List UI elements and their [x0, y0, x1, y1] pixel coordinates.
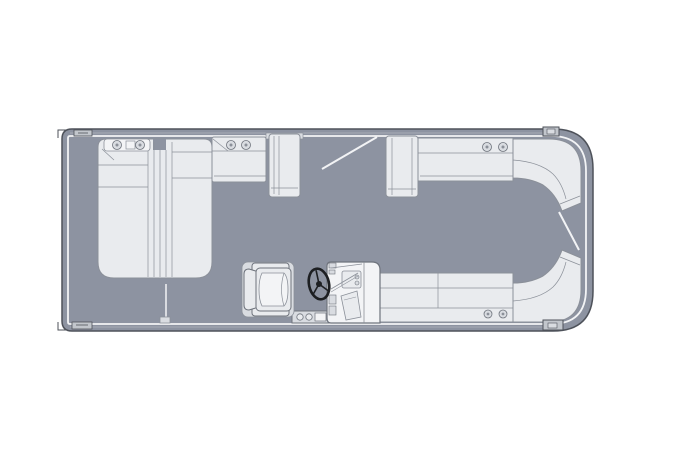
cleat-top-right-mark	[547, 129, 555, 134]
bowport-cupholder-icon-1-dot	[486, 146, 489, 149]
helm-console-vent-2	[329, 270, 335, 274]
helm-base-knob-1	[297, 314, 303, 320]
aft-cupholder-icon-1-dot	[116, 144, 119, 147]
pontoon-floorplan-diagram	[0, 0, 690, 461]
mid-cupholder-icon-2-dot	[245, 144, 248, 147]
gate-right-seat	[386, 136, 418, 197]
captain-chair-seat-cushion	[259, 273, 288, 306]
stbd-cupholder-icon-1-dot	[487, 313, 490, 316]
stbd-cupholder-icon-2-dot	[502, 313, 505, 316]
aft-pod-divider	[126, 141, 135, 149]
bowport-cupholder-icon-2-dot	[502, 146, 505, 149]
bow-port-bench	[418, 138, 513, 181]
bow-starboard-bench	[378, 273, 513, 322]
helm-knob-1	[355, 275, 359, 279]
aft-facing-lounge	[98, 139, 212, 278]
helm-base-knob-2	[306, 314, 312, 320]
aft-lounge-backrest-notch	[153, 139, 166, 150]
port-mid-bench	[212, 137, 266, 182]
helm-base-plate	[315, 313, 326, 321]
cleat-bottom-left	[72, 322, 92, 329]
helm-knob-2	[355, 281, 359, 285]
mid-cupholder-icon-1-dot	[230, 144, 233, 147]
pontoon-floorplan-page	[0, 0, 690, 461]
side-gate-latch	[160, 317, 170, 323]
cleat-bottom-right-mark	[548, 323, 557, 328]
helm-switch-panel-2	[329, 306, 336, 315]
aft-cupholder-icon-2-dot	[139, 144, 142, 147]
helm-switch-panel-1	[329, 295, 336, 304]
helm-gauge-panel	[342, 271, 361, 288]
